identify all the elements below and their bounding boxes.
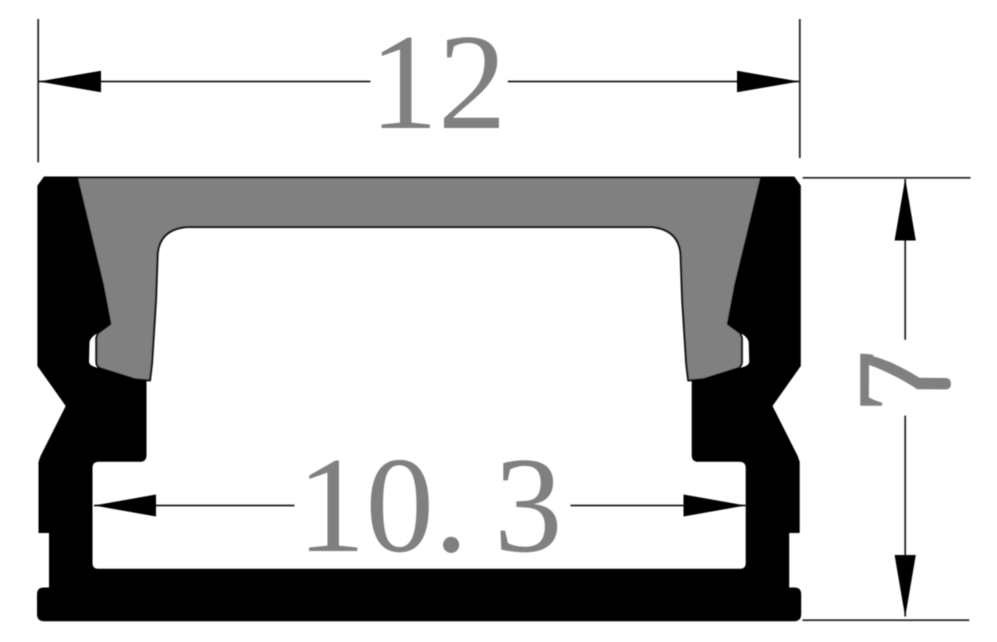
svg-text:12: 12 <box>370 6 507 158</box>
svg-text:3: 3 <box>494 429 563 581</box>
svg-text:10.: 10. <box>297 429 468 581</box>
